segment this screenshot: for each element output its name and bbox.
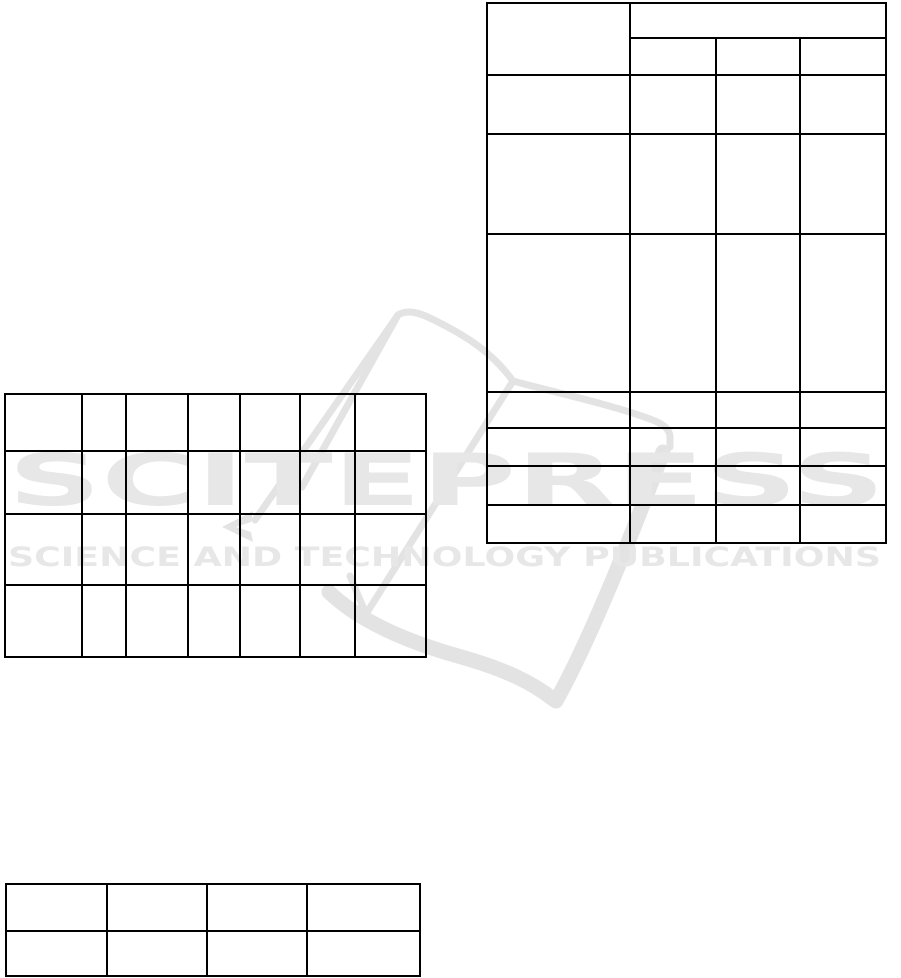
table-cell [716,392,800,428]
table-cell [355,394,426,451]
paper-page: SCITEPRESS SCIENCE AND TECHNOLOGY PUBLIC… [0,0,901,978]
table-cell [800,392,886,428]
table-cell [82,514,126,585]
table-cell [630,234,716,392]
table-cell [487,466,630,505]
table-cell [240,451,300,514]
table-cell [487,75,630,134]
table-cell [716,234,800,392]
table-cell [107,931,207,976]
table-cell [82,451,126,514]
table-cell [487,234,630,392]
table-cell [5,585,82,657]
tables-layer [0,0,901,978]
table-cell [5,514,82,585]
table-cell [630,75,716,134]
table-cell [6,884,107,931]
table-cell [800,505,886,543]
table-cell [107,884,207,931]
table-cell [207,931,307,976]
table-cell [716,466,800,505]
table-cell [800,466,886,505]
table-cell [126,585,188,657]
table-cell [240,394,300,451]
table-cell [126,394,188,451]
table-cell [207,884,307,931]
table-cell [307,931,420,976]
table-cell [5,451,82,514]
table-cell [800,38,886,75]
table-cell [188,514,240,585]
table-cell [240,585,300,657]
table-cell [630,3,886,38]
table-cell [126,451,188,514]
table-cell [82,394,126,451]
table-cell [6,931,107,976]
table-cell [800,234,886,392]
table-cell [487,505,630,543]
table-cell [800,75,886,134]
table-cell [300,585,355,657]
table-cell [630,134,716,234]
table-cell [188,451,240,514]
table-cell [630,466,716,505]
table-cell [716,428,800,466]
table-cell [240,514,300,585]
table-cell [487,134,630,234]
table-cell [82,585,126,657]
table-cell [188,585,240,657]
table-cell [300,394,355,451]
table-cell [716,505,800,543]
table-cell [300,451,355,514]
table-cell [307,884,420,931]
table-cell [487,3,630,75]
table-cell [5,394,82,451]
table-cell [300,514,355,585]
table-cell [630,392,716,428]
table-cell [800,428,886,466]
table-cell [188,394,240,451]
table-cell [355,585,426,657]
table-cell [126,514,188,585]
table-cell [716,38,800,75]
table-cell [630,505,716,543]
table-cell [355,514,426,585]
table-cell [630,428,716,466]
table-cell [800,134,886,234]
table-cell [487,392,630,428]
table-cell [487,428,630,466]
table-cell [630,38,716,75]
table-cell [716,134,800,234]
table-cell [355,451,426,514]
table-cell [716,75,800,134]
